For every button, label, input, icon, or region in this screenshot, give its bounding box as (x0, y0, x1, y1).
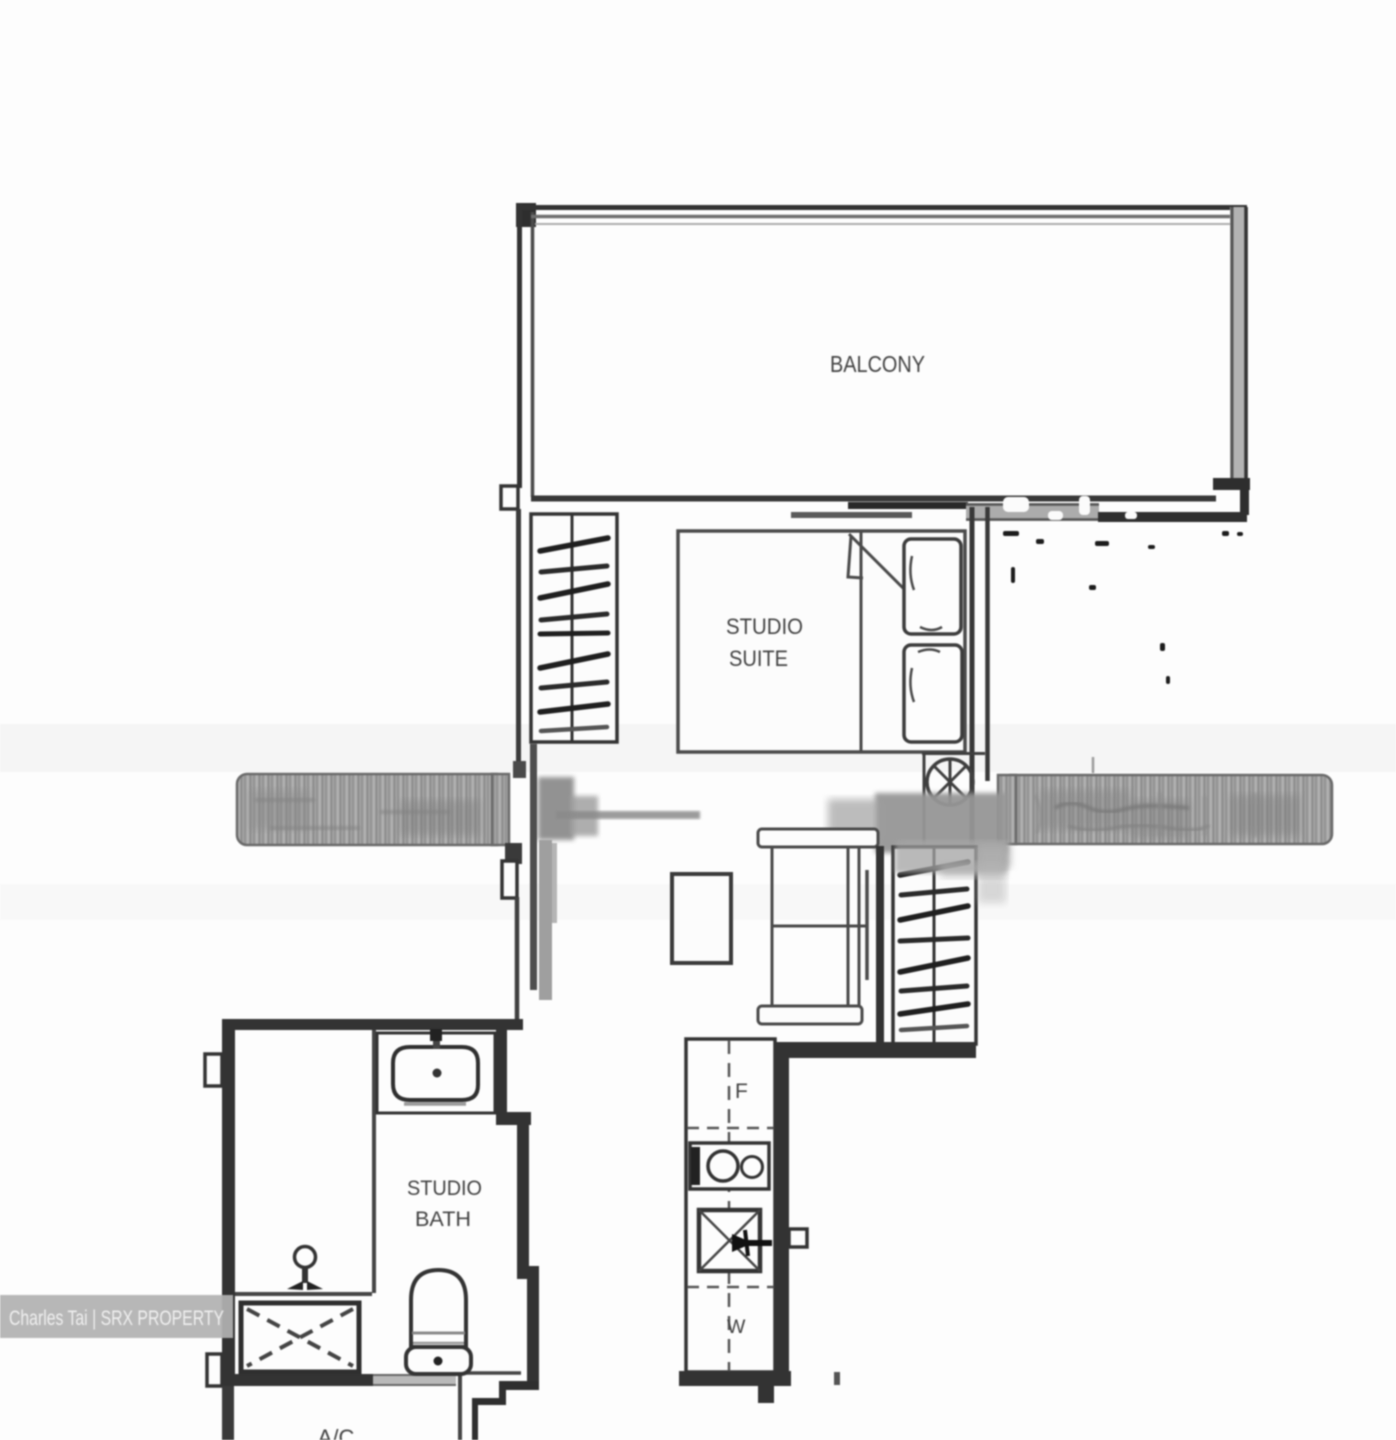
svg-text:W: W (727, 1316, 746, 1338)
svg-text:SUITE: SUITE (729, 646, 788, 671)
svg-text:Charles Tai | SRX PROPERTY: Charles Tai | SRX PROPERTY (9, 1307, 224, 1330)
svg-text:STUDIO: STUDIO (407, 1176, 482, 1200)
svg-text:A/C: A/C (318, 1425, 355, 1440)
svg-text:F: F (735, 1080, 748, 1103)
svg-text:BATH: BATH (415, 1207, 471, 1231)
svg-text:BALCONY: BALCONY (830, 351, 925, 377)
svg-text:STUDIO: STUDIO (726, 614, 803, 639)
